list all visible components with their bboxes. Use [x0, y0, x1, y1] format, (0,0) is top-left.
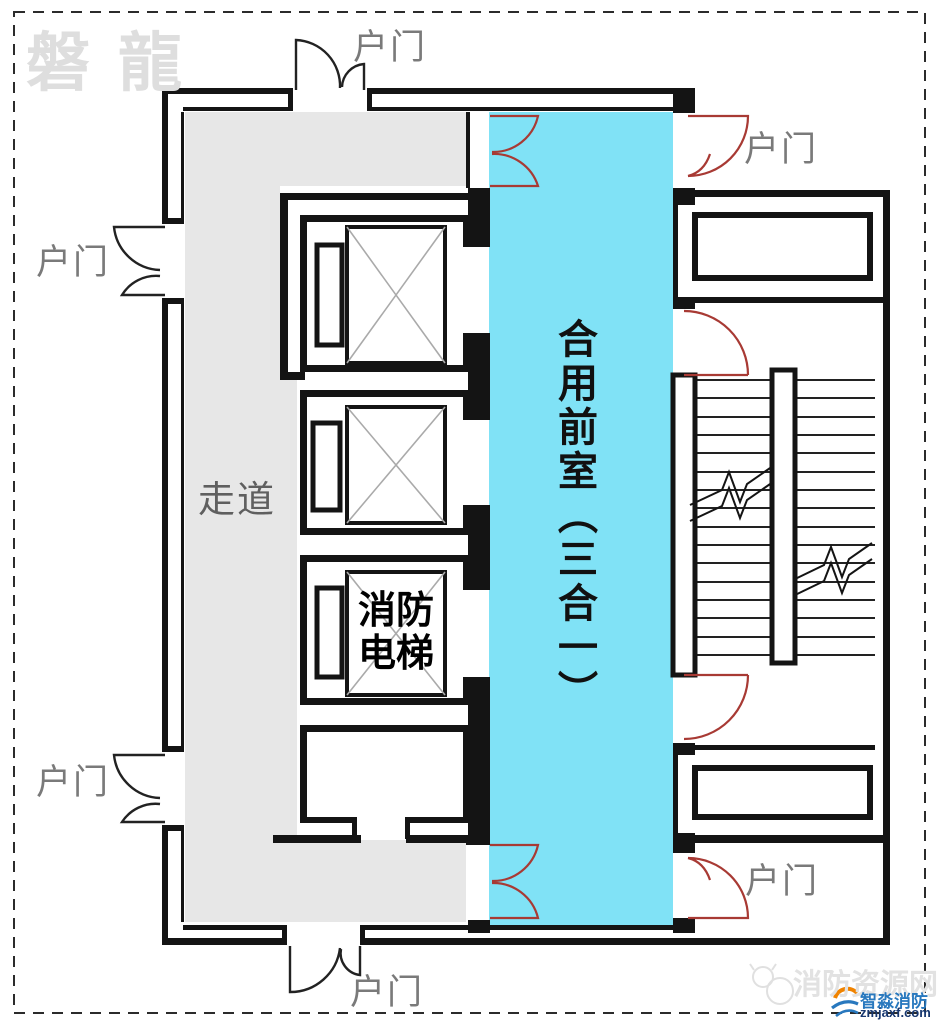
door-swing-icon: [684, 675, 748, 739]
front-room-label: 合用前室（三合一）: [552, 318, 596, 714]
fire-elevator-label: 消防电梯: [347, 590, 445, 675]
counterweight-icon: [317, 245, 342, 345]
elevator-car-icon: [347, 227, 445, 363]
watermark-panlong: 磐龍: [26, 12, 210, 104]
door-swing-icon: [114, 227, 165, 270]
corridor-label: 走道: [198, 481, 276, 518]
mascot-icon: [750, 964, 793, 1004]
door-swing-icon: [342, 64, 364, 90]
entry-door-label-left-lower: 户门: [36, 765, 110, 800]
counterweight-icon: [317, 588, 342, 677]
elevator-car-icon: [347, 407, 445, 523]
door-swing-icon: [688, 116, 748, 176]
floor-plan-diagram: 户门 户门 户门 户门 户门 户门 走道 合用前室（三合一） 消防电梯 磐龍 消…: [0, 0, 946, 1025]
entry-door-label-left-upper: 户门: [36, 245, 110, 280]
entry-door-label-top: 户门: [353, 30, 427, 65]
stair-wall-pillar: [673, 375, 695, 675]
door-swing-icon: [114, 755, 165, 798]
stair-center-divider: [772, 370, 795, 663]
entry-door-label-bottom-right: 户门: [745, 864, 819, 899]
door-swing-icon: [122, 276, 165, 295]
door-swing-icon: [290, 946, 340, 992]
door-swing-icon: [684, 311, 748, 375]
entry-door-label-top-right: 户门: [744, 132, 818, 167]
door-swing-icon: [341, 946, 360, 975]
entry-door-label-bottom: 户门: [350, 975, 424, 1010]
top-right-shaft: [695, 215, 870, 278]
watermark-url: zmjaxf.com: [860, 1005, 931, 1020]
door-swing-icon: [296, 40, 340, 90]
counterweight-icon: [313, 423, 340, 510]
bottom-right-shaft: [695, 768, 870, 817]
door-swing-icon: [688, 858, 748, 918]
door-swing-icon: [122, 804, 165, 822]
